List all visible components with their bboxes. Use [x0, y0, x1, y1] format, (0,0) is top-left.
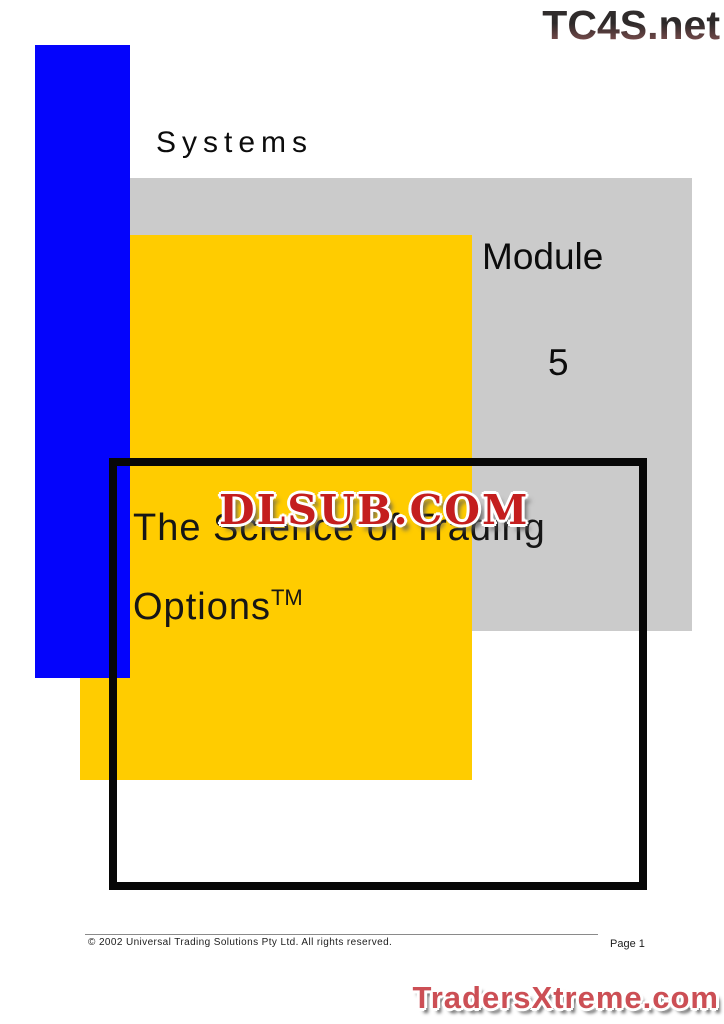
cover-title-line2-text: Options: [133, 586, 271, 628]
footer-divider-line: [85, 934, 598, 935]
module-label: Module: [482, 236, 603, 278]
cover-title-line2: OptionsTM: [133, 563, 546, 642]
page-number: Page 1: [610, 938, 645, 950]
dlsub-watermark-logo: DLSUB.COM: [219, 486, 529, 534]
module-number: 5: [548, 342, 569, 384]
footer-copyright: © 2002 Universal Trading Solutions Pty L…: [88, 937, 392, 948]
tc4s-watermark-logo: TC4S.net: [542, 2, 720, 49]
document-cover-page: TC4S.net Systems Module 5 The Science of…: [0, 0, 724, 1024]
trademark-symbol: TM: [271, 585, 303, 610]
tradersxtreme-watermark-logo: TradersXtreme.com: [413, 980, 719, 1016]
systems-heading: Systems: [156, 126, 313, 160]
